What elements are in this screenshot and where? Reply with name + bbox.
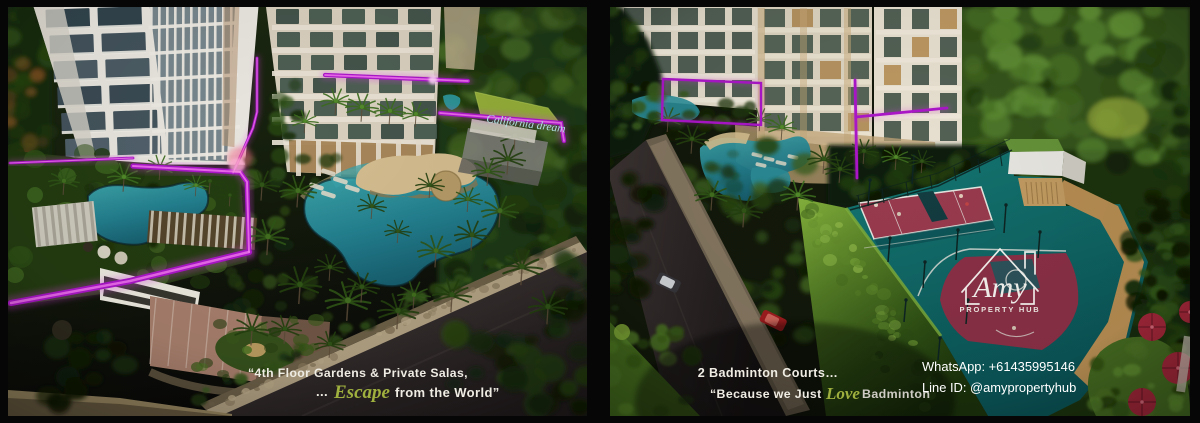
svg-text:Love: Love bbox=[825, 384, 860, 403]
svg-text:PROPERTY HUB: PROPERTY HUB bbox=[959, 305, 1040, 314]
svg-text:from the World”: from the World” bbox=[395, 385, 500, 400]
svg-text:...: ... bbox=[316, 384, 328, 399]
svg-text:Line ID: @amypropertyhub: Line ID: @amypropertyhub bbox=[922, 380, 1076, 395]
svg-text:Escape: Escape bbox=[333, 382, 391, 403]
svg-text:Amy: Amy bbox=[971, 271, 1027, 304]
svg-text:Badminton: Badminton bbox=[862, 387, 930, 401]
svg-text:2 Badminton Courts…: 2 Badminton Courts… bbox=[698, 366, 839, 380]
svg-text:“4th Floor Gardens & Private S: “4th Floor Gardens & Private Salas, bbox=[248, 366, 468, 380]
svg-text:WhatsApp: +61435995146: WhatsApp: +61435995146 bbox=[922, 359, 1075, 374]
svg-text:“Because we Just: “Because we Just bbox=[710, 387, 822, 401]
